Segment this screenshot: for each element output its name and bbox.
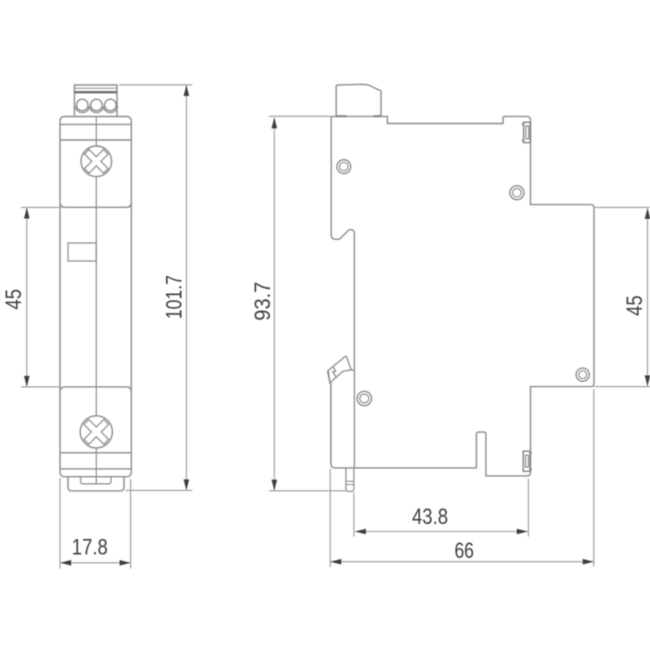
svg-text:45: 45 — [622, 295, 647, 316]
svg-text:45: 45 — [1, 289, 26, 310]
svg-text:43.8: 43.8 — [412, 504, 448, 529]
svg-text:93.7: 93.7 — [250, 282, 275, 321]
svg-text:66: 66 — [454, 538, 474, 563]
svg-text:101.7: 101.7 — [161, 275, 186, 319]
svg-text:17.8: 17.8 — [72, 534, 108, 559]
